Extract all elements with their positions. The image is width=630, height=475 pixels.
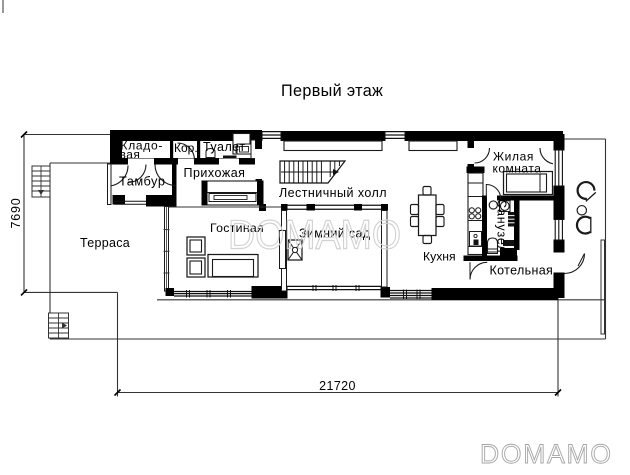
svg-text:вая: вая: [120, 148, 141, 162]
svg-text:Прихожая: Прихожая: [184, 166, 246, 180]
svg-text:Первый этаж: Первый этаж: [281, 82, 383, 100]
svg-text:Санузел: Санузел: [495, 199, 509, 253]
svg-text:7690: 7690: [9, 197, 23, 228]
svg-text:Туалет: Туалет: [203, 140, 246, 154]
svg-text:DOMAMO: DOMAMO: [228, 212, 401, 258]
svg-text:Лестничный холл: Лестничный холл: [279, 186, 387, 200]
svg-text:комната: комната: [493, 162, 542, 176]
svg-text:Кухня: Кухня: [423, 250, 456, 264]
svg-text:Кор.: Кор.: [174, 141, 198, 155]
svg-text:21720: 21720: [319, 379, 356, 393]
svg-text:Терраса: Терраса: [80, 236, 130, 250]
svg-text:Тамбур: Тамбур: [119, 174, 165, 189]
svg-text:Котельная: Котельная: [490, 264, 554, 278]
